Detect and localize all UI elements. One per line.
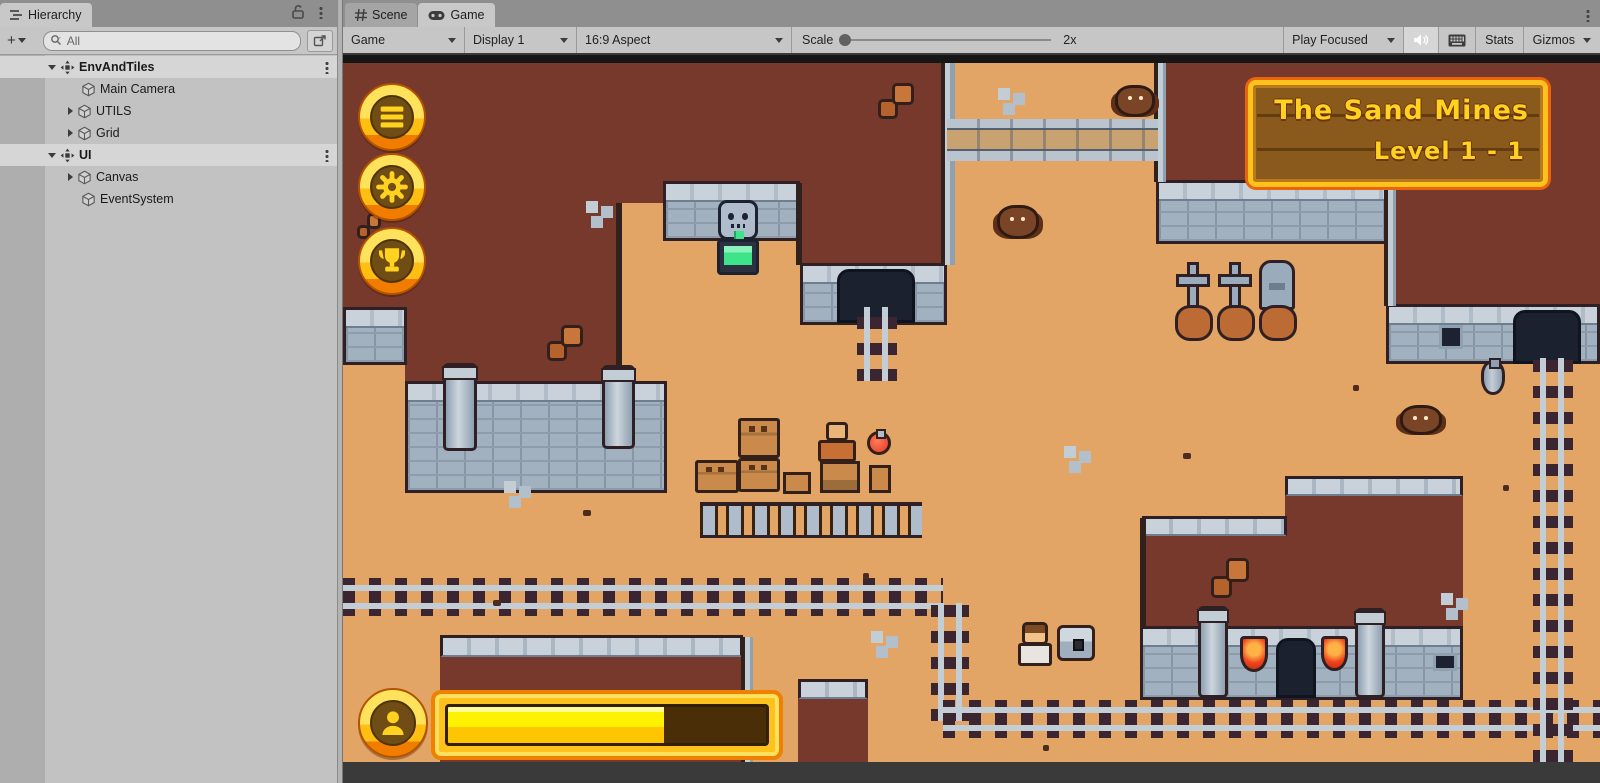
temple-body-cap	[1142, 516, 1287, 536]
wall-pillar-a	[443, 363, 477, 451]
hierarchy-row-label: Canvas	[96, 170, 138, 184]
menu-icon	[360, 85, 424, 149]
temple-upper-cap	[1285, 476, 1463, 496]
hud-profile-button[interactable]	[358, 688, 428, 758]
clay-jug	[1481, 361, 1505, 395]
expand-caret-icon[interactable]	[48, 153, 56, 158]
cube-icon	[76, 169, 92, 185]
display-mode-dropdown[interactable]: Game	[343, 27, 465, 53]
cube-icon	[80, 81, 96, 97]
speaker-icon	[1413, 33, 1429, 47]
shop-potion-stand	[869, 465, 891, 493]
treasure-chest	[1057, 625, 1095, 661]
crate-small	[783, 472, 811, 494]
level-number: Level 1 - 1	[1374, 137, 1525, 165]
pebbles-e	[1441, 593, 1469, 621]
mute-audio-button[interactable]	[1403, 27, 1438, 53]
edge-pocket-right	[796, 183, 802, 265]
plateau-bottom-left-cap	[440, 635, 743, 657]
wall-top-right	[1156, 180, 1390, 244]
display-dropdown[interactable]: Display 1	[465, 27, 577, 53]
hud-settings-button[interactable]	[358, 153, 426, 221]
hierarchy-row-canvas[interactable]: Canvas	[45, 166, 337, 188]
expand-caret-icon[interactable]	[68, 173, 73, 181]
pebbles-b	[998, 88, 1030, 116]
hierarchy-row-eventsystem[interactable]: EventSystem	[45, 188, 337, 210]
aspect-value: 16:9 Aspect	[585, 33, 765, 47]
person-icon	[360, 690, 426, 756]
plateau-right-step	[1386, 180, 1600, 306]
rail-right	[1533, 358, 1573, 762]
sand-speck-c	[1183, 453, 1191, 459]
hierarchy-tabstrip: Hierarchy	[0, 0, 337, 28]
pebbles-c	[504, 481, 544, 507]
temple-pillar-b	[1355, 608, 1385, 698]
cube-icon	[76, 103, 92, 119]
ore-rocks-c	[547, 325, 583, 361]
hierarchy-row-label: EnvAndTiles	[79, 60, 154, 74]
hierarchy-tab-label: Hierarchy	[28, 8, 82, 22]
level-progress-bar	[431, 690, 783, 760]
temple-left-edge	[1140, 518, 1146, 628]
tab-hierarchy[interactable]: Hierarchy	[0, 3, 92, 27]
trophy-icon	[360, 229, 424, 293]
scale-value: 2x	[1063, 33, 1076, 47]
progress-track	[445, 704, 769, 746]
mine-entrance-right	[1513, 310, 1581, 364]
expand-caret-icon[interactable]	[68, 129, 73, 137]
game-viewport: The Sand Mines Level 1 - 1	[343, 55, 1600, 762]
hierarchy-row-grid[interactable]: Grid	[45, 122, 337, 144]
grave-mound-c	[1259, 305, 1297, 341]
shop-fence	[700, 502, 922, 538]
expand-caret-icon[interactable]	[48, 65, 56, 70]
tab-scene[interactable]: Scene	[345, 3, 417, 27]
scale-slider-handle[interactable]	[839, 34, 851, 46]
scene-tab-label: Scene	[372, 8, 407, 22]
aspect-ratio-dropdown[interactable]: 16:9 Aspect	[577, 27, 792, 53]
crate-tall-bottom	[738, 458, 780, 492]
scene-icon	[355, 9, 367, 21]
game-icon	[428, 10, 445, 21]
ore-rocks-a	[878, 83, 914, 119]
hierarchy-row-label: UI	[79, 148, 92, 162]
hierarchy-row-label: Grid	[96, 126, 120, 140]
temple-pillar-a	[1198, 606, 1228, 698]
grave-mound-b	[1217, 305, 1255, 341]
unity-editor-window: Hierarchy + All	[0, 0, 1600, 783]
add-object-button[interactable]: +	[4, 32, 29, 49]
tab-game[interactable]: Game	[418, 3, 494, 27]
crate-tall-top	[738, 418, 780, 458]
rail-mid	[343, 578, 943, 616]
cube-icon	[80, 191, 96, 207]
grave-cross-a	[1176, 262, 1210, 310]
display-value: Display 1	[473, 33, 550, 47]
hud-menu-button[interactable]	[358, 83, 426, 151]
progress-fill	[448, 707, 664, 743]
stats-label: Stats	[1485, 33, 1514, 47]
add-object-label: +	[7, 32, 16, 49]
wall-window	[1439, 325, 1463, 349]
search-input[interactable]: All	[43, 31, 301, 51]
rail-center-short	[857, 307, 897, 381]
group-icon	[59, 59, 75, 75]
level-title: The Sand Mines	[1274, 95, 1529, 126]
shop-vendor	[818, 422, 856, 462]
scale-label: Scale	[802, 33, 833, 47]
shop-counter	[820, 461, 860, 493]
hierarchy-kebab-icon[interactable]	[319, 5, 323, 19]
hierarchy-row-utils[interactable]: UTILS	[45, 100, 337, 122]
search-detach-icon[interactable]	[307, 30, 333, 52]
cube-icon	[76, 125, 92, 141]
hierarchy-tree: EnvAndTilesMain CameraUTILSGridUICanvasE…	[45, 56, 337, 210]
edge-right-step	[1384, 182, 1396, 306]
hierarchy-panel: Hierarchy + All	[0, 0, 337, 783]
row-kebab-icon[interactable]	[325, 60, 329, 74]
game-tab-label: Game	[450, 8, 484, 22]
hud-trophy-button[interactable]	[358, 227, 426, 295]
bat-a	[1115, 85, 1155, 117]
letterbox-top	[343, 55, 1600, 63]
row-kebab-icon[interactable]	[325, 148, 329, 162]
sand-speck-e	[493, 600, 501, 606]
pebbles-a	[586, 201, 624, 233]
plateau-top-center	[667, 55, 947, 183]
expand-caret-icon[interactable]	[68, 107, 73, 115]
chevron-down-icon	[18, 38, 26, 43]
temple-vent	[1433, 653, 1457, 671]
chevron-down-icon	[775, 38, 783, 43]
hierarchy-row-main-camera[interactable]: Main Camera	[45, 78, 337, 100]
sand-speck-b	[863, 573, 869, 579]
keyboard-icon	[1448, 34, 1466, 47]
hierarchy-row-envandtiles[interactable]: EnvAndTiles	[0, 56, 337, 78]
grave-stone	[1259, 260, 1295, 310]
group-icon	[59, 147, 75, 163]
hierarchy-row-label: UTILS	[96, 104, 131, 118]
chevron-down-icon	[1387, 38, 1395, 43]
scale-control: Scale 2x	[792, 33, 1283, 47]
search-placeholder: All	[67, 34, 80, 48]
game-view-kebab-icon[interactable]	[1586, 8, 1590, 22]
sand-speck-f	[1043, 745, 1049, 751]
game-view-pane: Scene Game Game Display 1 16:9 Aspect	[343, 0, 1600, 783]
grave-mound-a	[1175, 305, 1213, 341]
shop-potion	[867, 431, 891, 455]
plateau-center-right	[800, 181, 947, 265]
sand-speck-a	[583, 510, 591, 516]
stats-button[interactable]: Stats	[1475, 27, 1523, 53]
rail-bridge-top	[947, 119, 1158, 161]
pebbles-d	[1064, 446, 1096, 474]
gizmos-label: Gizmos	[1533, 33, 1575, 47]
pebbles-f	[871, 631, 897, 653]
sand-speck-h	[1503, 485, 1509, 491]
bat-c	[1400, 405, 1442, 435]
display-mode-value: Game	[351, 33, 438, 47]
play-mode-dropdown[interactable]: Play Focused	[1283, 27, 1403, 53]
play-mode-value: Play Focused	[1292, 33, 1377, 47]
game-view-tabstrip: Scene Game	[343, 0, 1600, 28]
scale-slider[interactable]	[841, 39, 1051, 41]
lock-icon[interactable]	[291, 4, 305, 19]
hierarchy-row-ui[interactable]: UI	[0, 144, 337, 166]
fountain-basin	[717, 239, 759, 275]
wall-pillar-b	[602, 365, 635, 449]
rail-bottom	[943, 700, 1600, 738]
temple-doorway	[1276, 638, 1316, 698]
hierarchy-row-label: EventSystem	[100, 192, 174, 206]
ore-rocks-b	[1211, 558, 1249, 598]
gear-icon	[360, 155, 424, 219]
keyboard-shortcuts-button[interactable]	[1438, 27, 1475, 53]
hierarchy-toolbar: + All	[0, 27, 337, 55]
chevron-down-icon	[448, 38, 456, 43]
gizmos-dropdown[interactable]: Gizmos	[1523, 27, 1600, 53]
search-icon	[50, 34, 63, 47]
wall-top-left	[343, 307, 407, 365]
chevron-down-icon	[1583, 38, 1591, 43]
player-character	[1018, 622, 1052, 666]
game-view-toolbar: Game Display 1 16:9 Aspect Scale 2x Play…	[343, 27, 1600, 55]
grave-cross-b	[1218, 262, 1252, 310]
temple-banner-b	[1321, 636, 1348, 671]
crate-left	[695, 460, 739, 493]
sand-speck-d	[1353, 385, 1359, 391]
plateau-bottom-small-cap	[798, 679, 868, 699]
chevron-down-icon	[560, 38, 568, 43]
temple-banner-a	[1240, 636, 1268, 672]
hierarchy-row-label: Main Camera	[100, 82, 175, 96]
hierarchy-icon	[10, 9, 23, 21]
bat-b	[997, 205, 1039, 239]
letterbox-bar	[343, 762, 1600, 783]
level-title-banner: The Sand Mines Level 1 - 1	[1248, 80, 1548, 187]
